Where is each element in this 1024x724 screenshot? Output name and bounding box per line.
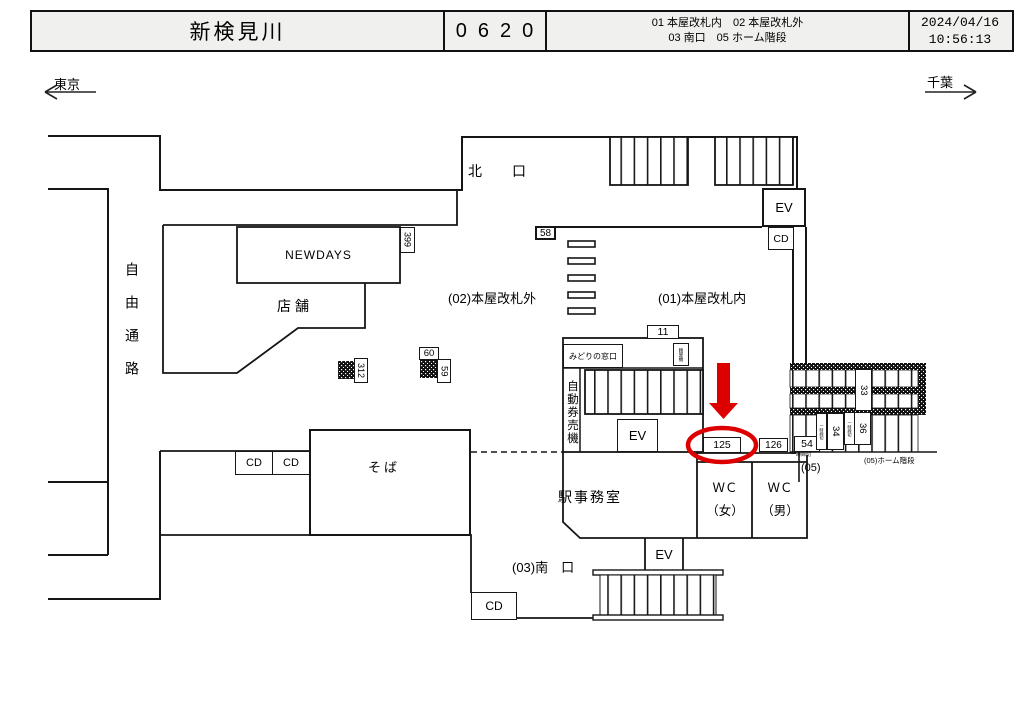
drawing-code: 0620 — [445, 12, 547, 50]
cd-north-box: CD — [768, 227, 794, 250]
wc-women-line1: ＷＣ — [712, 477, 737, 500]
midori-madoguchi-box: みどりの窓口 — [563, 344, 623, 368]
north-stairs-right — [715, 137, 793, 185]
position-chip-126: 126 — [759, 438, 788, 452]
position-chip-125: 125 — [703, 437, 741, 453]
position-chip-34: 34 — [827, 413, 844, 450]
platform-stairs-treads-1 — [790, 370, 918, 387]
cd-south-box: CD — [471, 592, 517, 620]
store-label: 店舗 — [277, 296, 313, 316]
position-chip-33: 33 — [855, 369, 872, 411]
equipment-hatch-312 — [338, 361, 354, 379]
platform-stairs-band-mid-right — [872, 387, 918, 394]
south-exit-label: (03)南 口 — [512, 557, 574, 576]
legend-line-2: 03 南口 05 ホーム階段 — [668, 31, 786, 46]
cd-left-box-2: CD — [272, 451, 310, 475]
temp-closed-note: 一時締切 — [791, 451, 811, 458]
north-stairs-left — [610, 137, 688, 185]
soba-outline — [310, 430, 470, 535]
wc-men-label: ＷＣ （男） — [754, 477, 806, 523]
wc-men-line2: （男） — [761, 500, 799, 523]
temp-closed-strip-2: 一時締切 — [844, 412, 855, 445]
position-chip-58: 58 — [535, 226, 556, 240]
central-stairs — [585, 370, 703, 414]
temp-closed-strip-1: 一時締切 — [816, 413, 827, 450]
capture-date: 2024/04/16 — [921, 14, 999, 31]
free-passage-label: 自由通路 — [122, 262, 142, 397]
fare-adjustment-box: 精算機 — [673, 343, 689, 366]
platform-stairs-right-strip — [918, 363, 926, 415]
station-name: 新検見川 — [32, 12, 445, 50]
platform-stairs-band-mid-left — [790, 387, 856, 394]
capture-time: 10:56:13 — [929, 31, 991, 48]
outside-gate-label: (02)本屋改札外 — [448, 288, 536, 307]
ev-central-box: EV — [617, 419, 658, 452]
north-exit-label: 北 口 — [468, 161, 534, 181]
chiba-label: 千葉 — [927, 72, 953, 91]
wc-women-line2: （女） — [706, 500, 744, 523]
wc-women-label: ＷＣ （女） — [699, 477, 751, 523]
legend-line-1: 01 本屋改札内 02 本屋改札外 — [652, 16, 804, 31]
inside-gate-label: (01)本屋改札内 — [658, 288, 746, 307]
position-chip-312: 312 — [354, 358, 368, 383]
ev-north-box: EV — [762, 188, 806, 227]
ticket-machines-label: 自動券売機 — [562, 373, 580, 451]
south-stairs-bottom-rail — [593, 615, 723, 620]
position-chip-59: 59 — [437, 359, 451, 383]
newdays-label: NEWDAYS — [237, 227, 400, 283]
title-bar: 新検見川 0620 01 本屋改札内 02 本屋改札外 03 南口 05 ホーム… — [30, 10, 1014, 52]
ev-south-box: EV — [645, 538, 683, 571]
position-chip-60: 60 — [419, 347, 439, 360]
cd-left-box-1: CD — [235, 451, 273, 475]
position-chip-36: 36 — [854, 412, 871, 445]
station-office-label: 駅事務室 — [558, 487, 622, 507]
equipment-hatch-60 — [420, 360, 437, 378]
gate-05-label: (05) — [801, 462, 821, 474]
platform-stairs-label: (05)ホーム階段 — [864, 455, 915, 466]
south-stairs-treads — [600, 575, 716, 615]
platform-stairs-treads-2 — [790, 394, 918, 408]
tokyo-label: 東京 — [54, 74, 80, 93]
position-chip-11: 11 — [647, 325, 679, 339]
station-floor-plan: 新検見川 0620 01 本屋改札内 02 本屋改札外 03 南口 05 ホーム… — [0, 0, 1024, 724]
soba-label: そば — [368, 457, 400, 476]
wc-men-line1: ＷＣ — [767, 477, 792, 500]
ticket-gates — [568, 241, 595, 314]
position-chip-399: 399 — [400, 227, 415, 253]
